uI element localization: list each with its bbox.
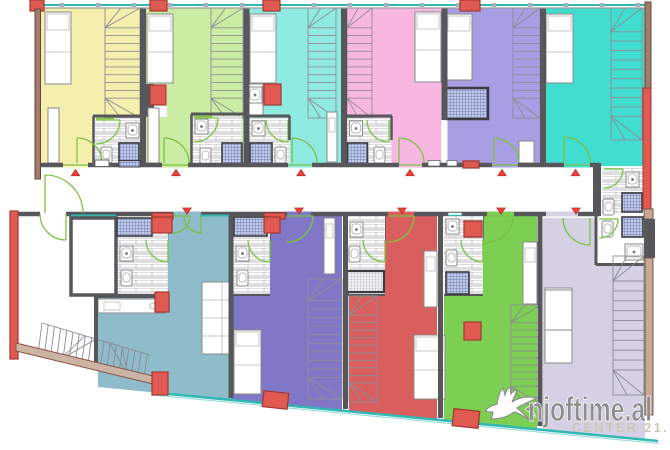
svg-text:CENTER 21.: CENTER 21. [572,421,669,435]
